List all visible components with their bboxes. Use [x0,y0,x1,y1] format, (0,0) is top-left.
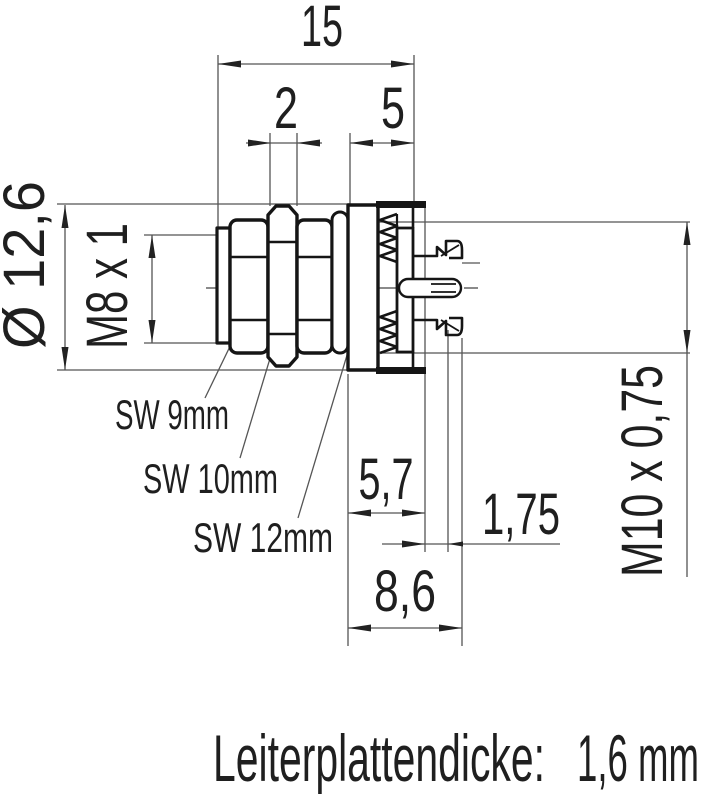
hex-sw9 [230,220,268,353]
wrench-label-sw10: SW 10mm [143,455,278,502]
arrow-clamp-right [448,542,463,547]
snap-arm-top [413,241,462,258]
o-ring [332,212,348,353]
dim-nut-width-label: 2 [274,76,298,141]
lock-washer-teeth-top [380,214,397,262]
arrow-rear-depth-right [439,625,462,632]
arrow-clamp-left [402,541,425,548]
arrow-m10-bottom [684,330,691,353]
drawing-labels: 15 2 5 Ø 12,6 M8 x 1 M10 x 0,75 SW 9mm S… [0,0,699,794]
panel-bar-bottom [376,367,426,374]
technical-drawing-canvas: 15 2 5 Ø 12,6 M8 x 1 M10 x 0,75 SW 9mm S… [0,0,706,794]
lock-washer-teeth-bottom [380,311,397,353]
contact-tongue [399,279,461,297]
footer-value: 1,6 mm [577,721,699,794]
arrow-m8-bottom [149,320,156,343]
mounting-flange [348,205,378,370]
panel-bar-top [376,201,426,208]
dim-panel-depth-label: 5,7 [359,447,414,512]
hex-nut-sw10 [268,206,297,366]
arrow-rear-depth-left [348,625,371,632]
arrow-diameter-top [62,205,69,228]
arrow-nut-right [297,140,320,147]
arrow-total-right [391,61,414,68]
footer-label: Leiterplattendicke: [213,721,545,794]
dim-rear-thread-label: M10 x 0,75 [610,365,675,577]
arrow-rear-left [350,140,373,147]
hex-sw12-body [297,220,332,353]
dim-total-width-label: 15 [301,0,343,59]
wrench-label-sw9: SW 9mm [115,391,229,438]
arrow-m10-top [684,222,691,245]
dim-rear-length-label: 5 [381,76,405,141]
technical-drawing-page: 15 2 5 Ø 12,6 M8 x 1 M10 x 0,75 SW 9mm S… [0,0,706,794]
dim-clamp-gap-label: 1,75 [482,482,560,547]
dim-rear-depth-label: 8,6 [374,559,436,624]
snap-arm-bottom [413,318,462,335]
snap-barb-edge-bottom [441,320,459,331]
front-cap [217,228,230,343]
arrow-m8-top [149,235,156,258]
wrench-label-sw12: SW 12mm [193,514,333,561]
arrow-diameter-bottom [62,347,69,370]
dim-flange-diameter-label: Ø 12,6 [0,181,57,349]
snap-barb-edge-top [441,245,459,256]
dim-front-thread-label: M8 x 1 [75,223,140,349]
arrow-nut-left [248,140,271,147]
arrow-total-left [218,61,241,68]
